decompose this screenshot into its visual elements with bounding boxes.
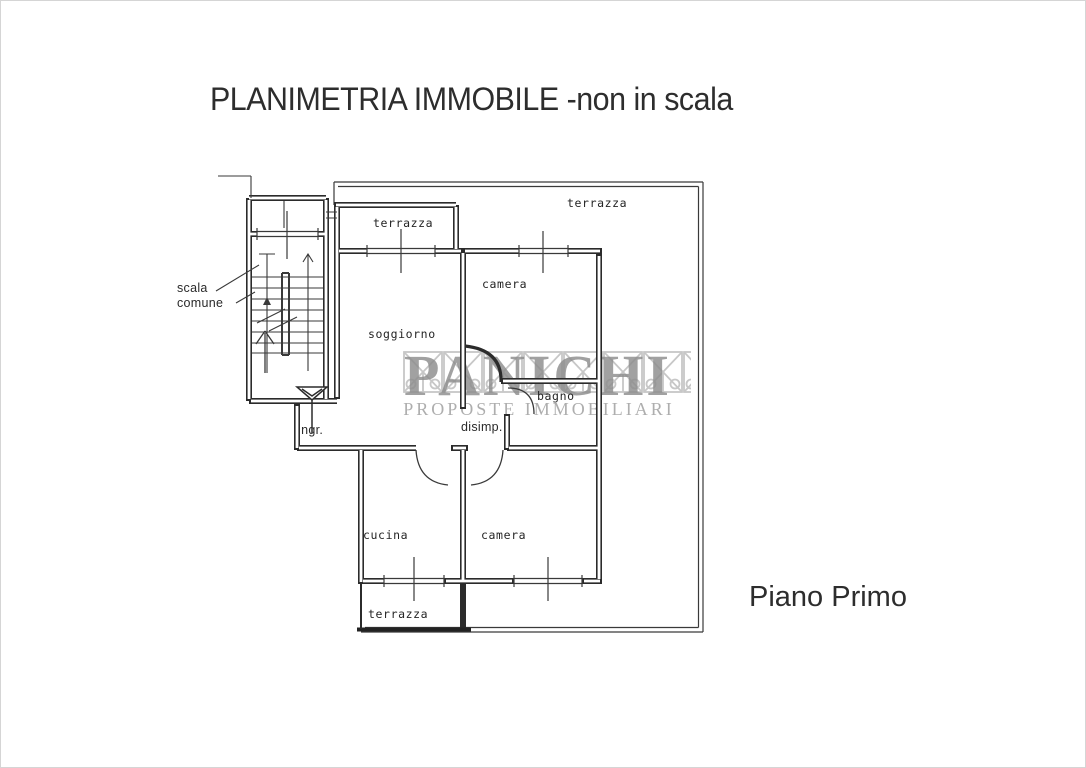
room-label-disimpegno: disimp. [461, 420, 503, 434]
room-label-scala-line2: comune [177, 296, 223, 310]
room-label-camera-south: camera [481, 528, 526, 542]
room-label-soggiorno: soggiorno [368, 327, 436, 341]
floor-plan-svg: PANICHI PROPOSTE IMMOBILIARI [1, 1, 1086, 768]
room-label-bagno: bagno [537, 389, 575, 403]
floor-label: Piano Primo [749, 581, 907, 614]
room-label-camera-north: camera [482, 277, 527, 291]
cucina-door-arc [416, 450, 448, 485]
room-label-ingresso: ingr. [298, 423, 323, 437]
room-label-cucina: cucina [363, 528, 408, 542]
scanned-floorplan-page: PLANIMETRIA IMMOBILE -non in scala PANIC… [0, 0, 1086, 768]
staircase [216, 176, 337, 373]
terrace-divider-wall [460, 584, 466, 630]
room-label-terrazza-bottom: terrazza [368, 607, 428, 621]
room-label-scala-line1: scala [177, 281, 208, 295]
room-label-terrazza-main: terrazza [567, 196, 627, 210]
camera-south-door-arc [471, 450, 503, 485]
room-label-terrazza-top: terrazza [373, 216, 433, 230]
